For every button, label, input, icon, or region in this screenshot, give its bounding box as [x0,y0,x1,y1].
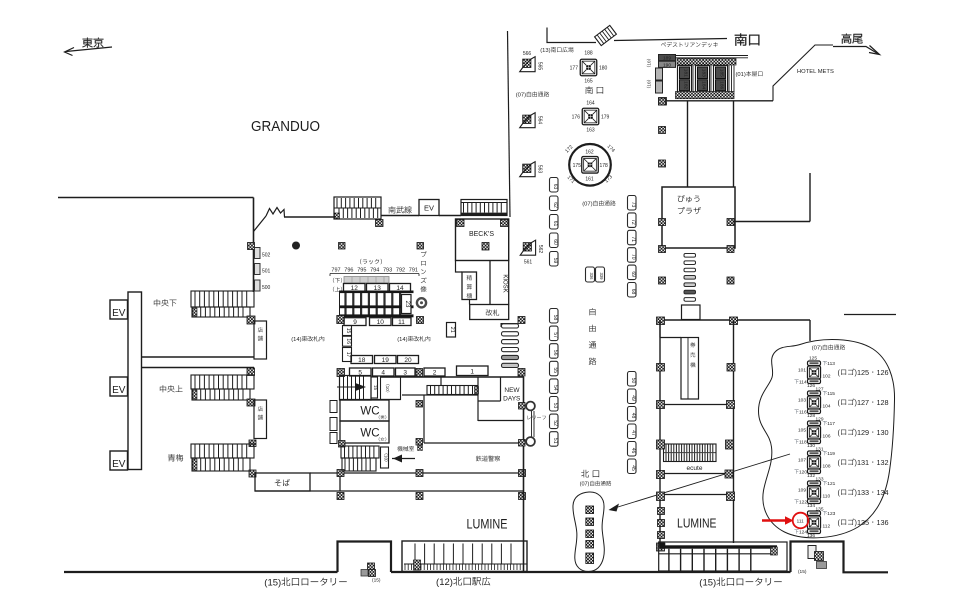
svg-text:119: 119 [827,451,835,457]
svg-text:60: 60 [552,239,558,245]
svg-text:129: 129 [815,417,823,423]
svg-text:131: 131 [815,447,823,453]
svg-text:796: 796 [344,268,353,274]
svg-text:181: 181 [683,69,689,77]
svg-text:110: 110 [823,494,831,500]
svg-text:(12): (12) [436,577,453,588]
svg-text:GRANDUO: GRANDUO [251,119,320,135]
svg-text:68: 68 [630,289,636,295]
svg-text:10: 10 [647,81,652,87]
svg-text:46: 46 [630,448,636,454]
svg-text:175: 175 [573,163,582,169]
svg-text:)125: )125 [855,368,870,377]
svg-text:339: 339 [599,272,604,280]
svg-text:3: 3 [403,370,407,377]
svg-text:)131: )131 [855,458,870,467]
svg-text:(07): (07) [582,202,592,208]
svg-text:)133: )133 [855,488,870,497]
svg-text:565: 565 [537,62,543,71]
svg-text:(13): (13) [540,48,550,54]
svg-text:795: 795 [357,268,366,274]
svg-text:)127: )127 [855,398,870,407]
svg-text:55: 55 [552,368,558,374]
svg-text:2: 2 [433,370,437,377]
svg-text:EV: EV [112,385,126,396]
svg-text:184: 184 [701,81,707,89]
svg-text:10: 10 [647,60,652,66]
svg-text:BECK'S: BECK'S [469,231,494,238]
svg-text:112: 112 [823,524,831,530]
svg-text:10: 10 [377,319,385,326]
svg-text:16: 16 [345,338,351,344]
svg-text:53: 53 [552,403,558,409]
svg-text:180: 180 [599,66,608,72]
svg-text:162: 162 [585,150,594,156]
svg-text:103: 103 [798,398,806,404]
svg-text:183: 183 [701,69,707,77]
svg-text:116: 116 [799,410,807,416]
svg-text:73: 73 [630,202,636,208]
svg-text:62: 62 [552,202,558,208]
svg-text:23: 23 [404,301,410,308]
svg-text:WC: WC [360,406,379,418]
svg-text:61: 61 [552,221,558,227]
svg-text:114: 114 [799,380,807,386]
svg-text:(14): (14) [397,337,407,343]
svg-text:111: 111 [797,518,804,523]
svg-text:178: 178 [600,163,609,169]
svg-text:163: 163 [586,128,595,134]
svg-text:132: 132 [876,458,888,467]
svg-text:(01): (01) [736,72,746,78]
svg-text:1: 1 [470,369,474,376]
svg-text:ecute: ecute [687,465,703,472]
svg-text:500: 500 [262,285,271,291]
svg-text:10: 10 [385,386,390,392]
svg-text:50: 50 [630,378,636,384]
svg-text:EV: EV [112,308,126,319]
svg-text:49: 49 [630,395,636,401]
svg-text:502: 502 [262,253,271,259]
svg-text:126: 126 [807,383,815,389]
svg-text:134: 134 [876,488,888,497]
svg-text:58: 58 [552,315,558,321]
svg-text:115: 115 [827,391,835,397]
svg-text:106: 106 [823,434,831,440]
svg-text:164: 164 [586,101,595,107]
svg-text:HOTEL METS: HOTEL METS [797,69,834,75]
svg-text:190: 190 [663,62,671,68]
svg-text:(15): (15) [372,578,381,584]
svg-text:72: 72 [630,219,636,225]
svg-text:108: 108 [823,464,831,470]
svg-text:KIOSK: KIOSK [502,274,508,292]
svg-text:179: 179 [601,115,610,121]
svg-text:501: 501 [262,269,271,275]
svg-text:70: 70 [630,254,636,260]
svg-text:791: 791 [409,268,418,274]
svg-text:WC: WC [360,428,379,440]
svg-text:136: 136 [807,533,815,539]
svg-text:54: 54 [552,385,558,391]
svg-text:128: 128 [807,413,815,419]
svg-text:)129: )129 [855,428,870,437]
svg-text:51: 51 [552,438,558,444]
svg-text:21: 21 [449,327,455,333]
svg-text:18: 18 [358,357,366,364]
svg-text:48: 48 [630,413,636,419]
svg-text:188: 188 [584,51,593,57]
svg-text:63: 63 [552,184,558,190]
svg-text:105: 105 [798,428,806,434]
svg-text:LUMINE: LUMINE [467,517,508,532]
svg-text:130: 130 [876,428,888,437]
svg-text:564: 564 [537,116,543,125]
svg-text:109: 109 [798,488,806,494]
svg-text:794: 794 [370,268,379,274]
svg-text:121: 121 [827,481,835,487]
svg-text:117: 117 [827,421,835,427]
svg-text:792: 792 [396,268,405,274]
svg-text:10: 10 [384,455,389,461]
svg-text:102: 102 [823,374,831,380]
svg-text:(15): (15) [798,569,807,575]
svg-text:(07): (07) [516,93,526,99]
svg-text:56: 56 [552,350,558,356]
svg-text:128: 128 [876,398,888,407]
svg-text:57: 57 [552,332,558,338]
svg-text:125: 125 [809,356,817,362]
svg-text:104: 104 [823,404,831,410]
svg-text:107: 107 [798,458,806,464]
svg-text:132: 132 [807,473,815,479]
svg-text:123: 123 [827,511,835,517]
svg-text:136: 136 [876,518,888,527]
svg-text:133: 133 [815,477,823,483]
svg-text:562: 562 [537,245,543,254]
svg-text:NEW: NEW [504,387,520,394]
svg-text:19: 19 [382,357,390,364]
svg-text:118: 118 [799,440,807,446]
svg-text:(14): (14) [291,337,301,343]
svg-text:)135: )135 [855,518,870,527]
svg-text:161: 161 [585,177,594,183]
svg-text:130: 130 [807,443,815,449]
svg-text:182: 182 [683,81,689,89]
svg-text:52: 52 [552,420,558,426]
svg-text:793: 793 [383,268,392,274]
svg-text:EV: EV [424,204,434,213]
svg-text:176: 176 [572,115,581,121]
svg-text:20: 20 [404,357,412,364]
svg-text:DAYS: DAYS [503,396,521,403]
svg-text:797: 797 [331,268,340,274]
svg-text:71: 71 [630,237,636,243]
svg-text:127: 127 [815,387,823,393]
svg-text:561: 561 [524,260,533,266]
svg-text:(15): (15) [264,578,281,589]
svg-text:186: 186 [719,81,725,89]
svg-text:134: 134 [807,503,815,509]
svg-text:9: 9 [353,319,357,326]
svg-text:15: 15 [373,385,378,391]
svg-text:LUMINE: LUMINE [677,516,717,531]
svg-text:4: 4 [381,370,385,377]
svg-text:(07): (07) [812,346,822,352]
svg-text:101: 101 [798,368,806,374]
svg-text:563: 563 [537,165,543,174]
svg-text:(15): (15) [699,578,716,589]
svg-text:135: 135 [815,507,823,513]
svg-text:566: 566 [523,51,532,57]
svg-text:113: 113 [827,361,835,367]
svg-text:47: 47 [630,430,636,436]
svg-text:EV: EV [112,459,126,470]
svg-text:59: 59 [552,258,558,264]
svg-text:45: 45 [630,465,636,471]
svg-text:185: 185 [719,69,725,77]
svg-text:165: 165 [584,79,593,85]
svg-text:336: 336 [589,272,594,280]
svg-text:(07): (07) [580,482,590,488]
svg-text:11: 11 [398,319,405,326]
svg-text:177: 177 [570,66,579,72]
svg-text:126: 126 [876,368,888,377]
svg-text:17: 17 [345,352,351,358]
svg-text:15: 15 [345,328,351,334]
svg-text:69: 69 [630,271,636,277]
